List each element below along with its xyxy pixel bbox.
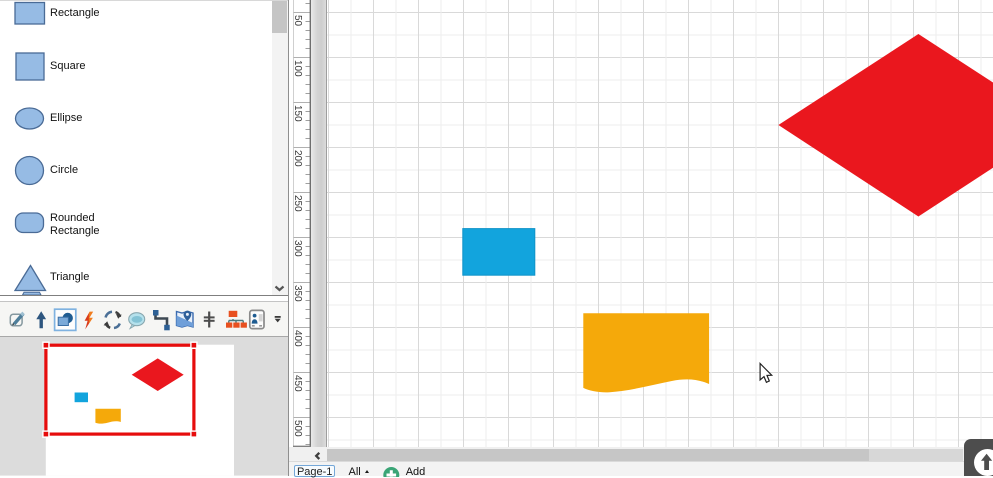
svg-text:50: 50 bbox=[293, 15, 303, 27]
svg-text:250: 250 bbox=[293, 195, 303, 212]
svg-text:500: 500 bbox=[293, 420, 303, 437]
svg-text:300: 300 bbox=[293, 240, 303, 257]
svg-text:150: 150 bbox=[293, 105, 303, 122]
svg-text:350: 350 bbox=[293, 285, 303, 302]
svg-text:450: 450 bbox=[293, 375, 303, 392]
svg-text:200: 200 bbox=[293, 150, 303, 167]
svg-text:100: 100 bbox=[293, 60, 303, 77]
svg-text:400: 400 bbox=[293, 330, 303, 347]
